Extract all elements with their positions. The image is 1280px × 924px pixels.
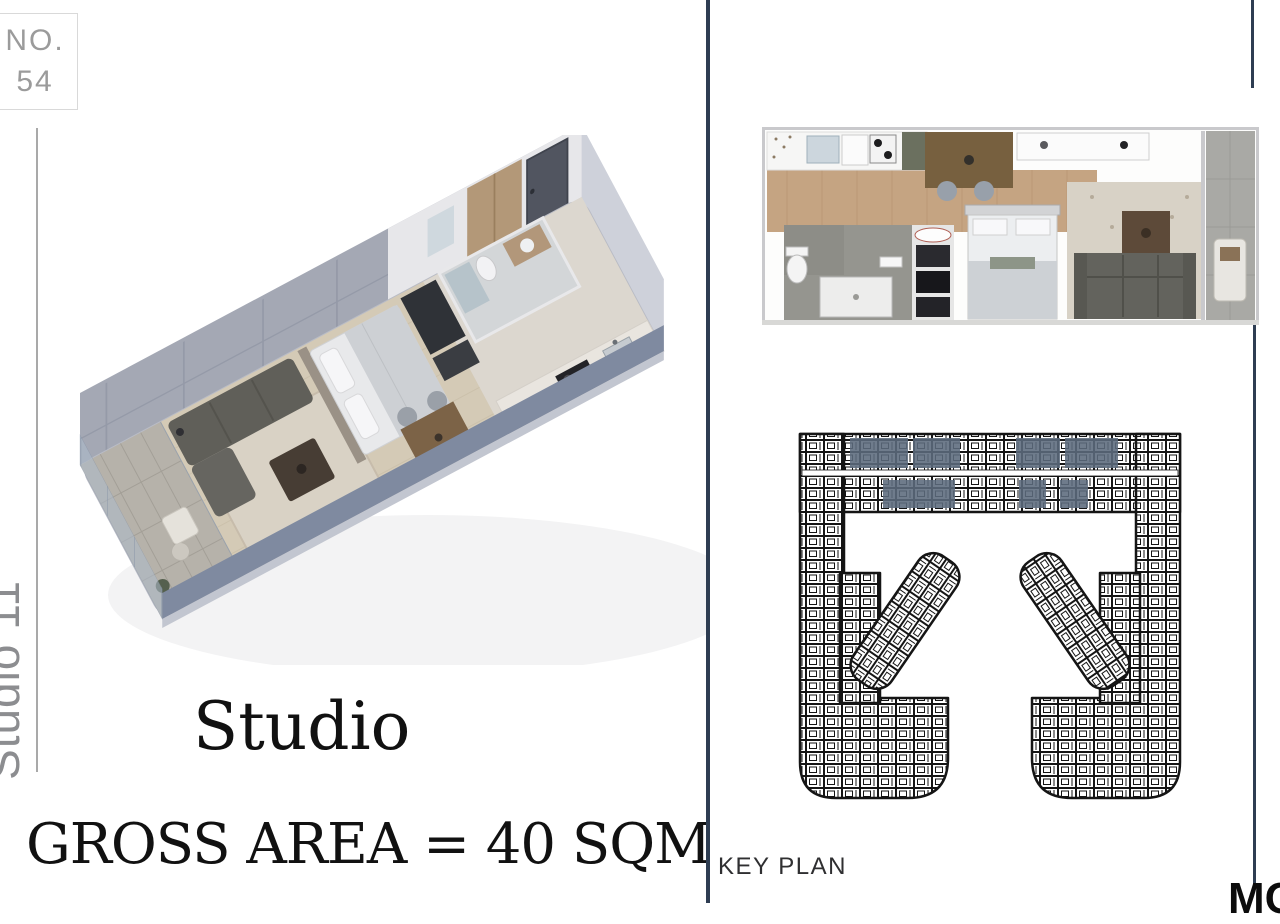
key-plan-drawing: [788, 428, 1192, 830]
unit-type-title: Studio: [193, 688, 410, 765]
plan-wardrobe: [912, 225, 954, 320]
plan-bathroom: [784, 225, 912, 320]
key-plan-label: KEY PLAN: [718, 853, 847, 881]
brochure-page: { "badge": { "label": "NO.", "number": "…: [0, 0, 1280, 903]
left-hairline-rule: [36, 128, 38, 772]
plan-bed: [965, 205, 1060, 319]
vertical-divider-rule: [706, 0, 710, 903]
plan-shadow: [762, 320, 1259, 325]
unit-number-label: NO.: [5, 21, 64, 62]
top-right-rule: [1251, 0, 1254, 88]
plan-kitchen: [767, 132, 928, 170]
plan-tv-console: [1017, 133, 1149, 160]
plan-balcony: [1203, 131, 1255, 321]
plan-sofa: [1074, 253, 1196, 319]
top-down-plan-render: [762, 127, 1259, 325]
unit-number-badge: NO. 54: [0, 13, 78, 110]
unit-number-value: 54: [16, 62, 53, 103]
gross-area-text: GROSS AREA = 40 SQM: [26, 812, 710, 877]
isometric-studio-render: [48, 135, 708, 665]
bottom-right-rule: [1253, 292, 1256, 888]
vertical-unit-type-label: Studio 11: [0, 480, 32, 780]
brand-logo-text: MC: [1228, 874, 1280, 924]
